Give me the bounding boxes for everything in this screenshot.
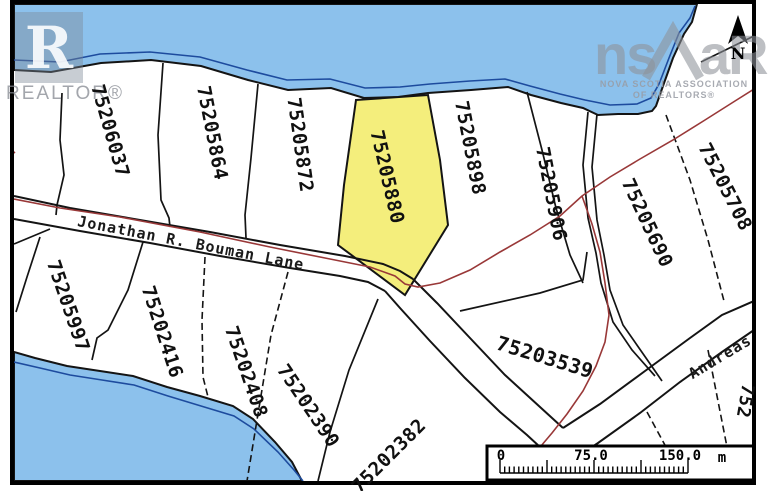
realtor-logo-icon: R <box>15 12 83 83</box>
scale-bar <box>487 446 754 480</box>
scale-label-unit: m <box>718 450 726 466</box>
scale-label-start: 0 <box>497 448 505 464</box>
scale-label-end: 150.0 <box>659 448 701 464</box>
realtor-logo-letter: R <box>25 19 73 77</box>
north-arrow-label: N <box>731 44 746 63</box>
nsar-association-line1: NOVA SCOTIA ASSOCIATION <box>600 79 748 89</box>
nsar-association-line2: OF REALTORS® <box>633 90 715 100</box>
scale-label-mid: 75.0 <box>574 448 608 464</box>
parcel-map-viewport: R REALTOR® ns aR NOVA SCOTIA ASSOCIATION… <box>0 0 768 491</box>
nsar-logo-ns: ns <box>594 22 655 87</box>
